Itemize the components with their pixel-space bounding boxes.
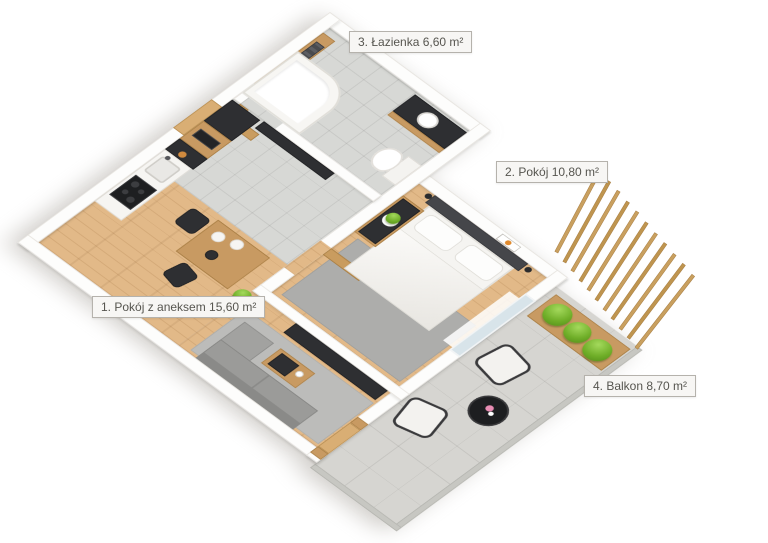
slat xyxy=(627,264,685,339)
room-label-pokoj-z-aneksem: 1. Pokój z aneksem 15,60 m² xyxy=(92,296,265,318)
room-label-balkon: 4. Balkon 8,70 m² xyxy=(584,375,696,397)
floorplan-stage: 1. Pokój z aneksem 15,60 m² 2. Pokój 10,… xyxy=(0,0,768,543)
room-label-pokoj: 2. Pokój 10,80 m² xyxy=(496,161,608,183)
room-label-lazienka: 3. Łazienka 6,60 m² xyxy=(349,31,472,53)
